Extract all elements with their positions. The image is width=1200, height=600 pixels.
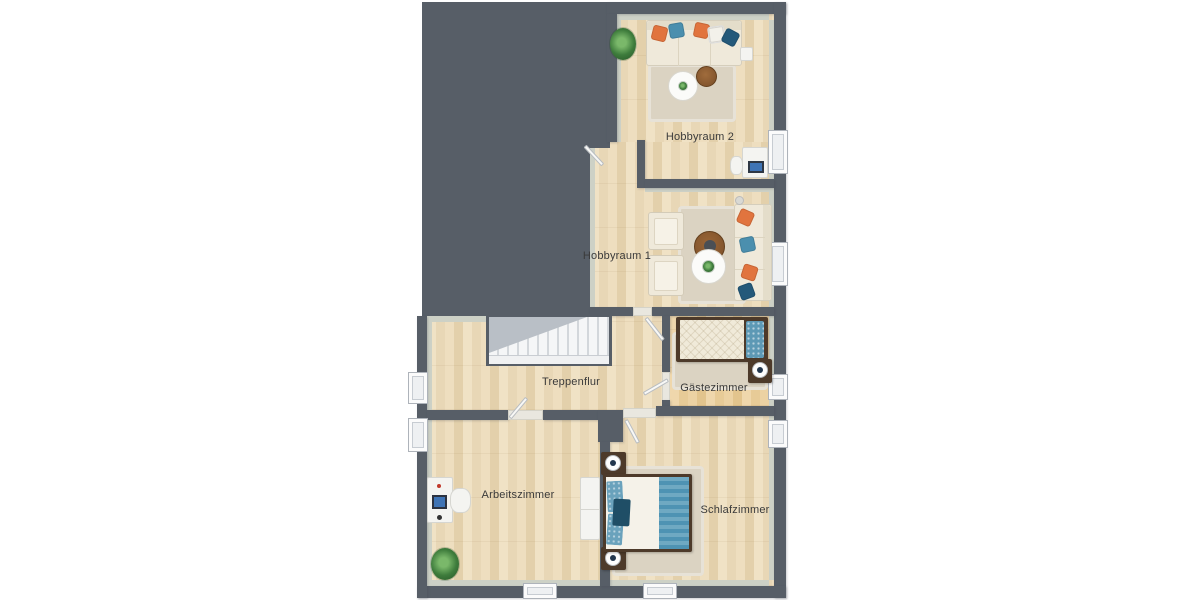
room-label-hobbyraum-1: Hobbyraum 1 <box>583 250 651 262</box>
office-chair <box>450 488 471 513</box>
blanket <box>659 477 689 549</box>
wall <box>607 2 786 14</box>
wall <box>543 410 598 420</box>
door-threshold <box>623 408 656 418</box>
wall <box>645 179 774 188</box>
pillow <box>739 236 757 254</box>
door-threshold <box>662 372 670 402</box>
plant <box>703 261 714 272</box>
window <box>523 583 557 599</box>
side-table <box>740 47 753 61</box>
wall <box>662 316 670 372</box>
room-label-hobbyraum-2: Hobbyraum 2 <box>666 131 734 143</box>
desk-item <box>437 515 442 520</box>
window <box>768 420 788 448</box>
wall <box>652 307 774 316</box>
table-lamp <box>605 455 621 471</box>
window <box>643 583 677 599</box>
wall <box>656 406 774 416</box>
armchair <box>648 212 684 250</box>
plant <box>679 82 687 90</box>
double-bed <box>603 474 692 552</box>
room-label-arbeitszimmer: Arbeitszimmer <box>482 489 555 501</box>
table-lamp <box>605 550 621 566</box>
roof-void-area <box>422 2 590 316</box>
wall <box>598 410 623 442</box>
window <box>768 130 788 174</box>
monitor <box>748 161 764 173</box>
staircase-stringer <box>489 355 609 364</box>
side-table <box>696 66 717 87</box>
plant <box>431 548 459 580</box>
room-label-treppenflur: Treppenflur <box>542 376 600 388</box>
table-lamp <box>752 362 768 378</box>
desk <box>742 147 768 178</box>
room-label-gaestezimmer: Gästezimmer <box>680 382 748 394</box>
wall <box>774 2 786 598</box>
wall <box>417 316 427 598</box>
mattress <box>680 320 744 359</box>
wall-face <box>422 316 486 322</box>
wall-face <box>645 188 769 192</box>
armchair <box>648 255 684 296</box>
wall <box>427 410 508 420</box>
wall <box>417 586 786 598</box>
single-bed <box>676 317 768 362</box>
window <box>408 372 428 404</box>
office-chair <box>730 156 743 175</box>
desk-item <box>437 484 441 488</box>
floor-lamp <box>735 196 744 205</box>
pillow <box>746 321 764 358</box>
door-threshold <box>633 307 652 316</box>
wall-face <box>590 142 595 316</box>
floor-plan: Hobbyraum 2 Hobbyraum 1 Treppenflur Gäst… <box>0 0 1200 600</box>
plant <box>610 28 636 60</box>
wall <box>637 140 645 188</box>
window <box>408 418 428 452</box>
monitor <box>432 495 447 509</box>
room-label-schlafzimmer: Schlafzimmer <box>700 504 769 516</box>
wardrobe <box>580 477 600 540</box>
bed-runner <box>612 499 630 527</box>
pillow <box>668 22 685 39</box>
